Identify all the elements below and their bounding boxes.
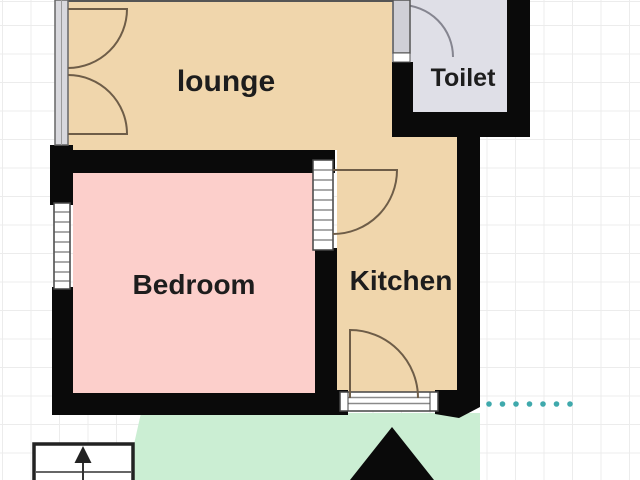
- toilet-door-leaf: [393, 0, 410, 53]
- toilet-label: Toilet: [431, 64, 496, 92]
- kitchen-entrance-threshold: [340, 392, 438, 411]
- bedroom-label: Bedroom: [133, 269, 256, 300]
- boundary-dotted-line: [486, 401, 573, 407]
- dot: [567, 401, 573, 407]
- wall-toilet-east: [507, 0, 530, 137]
- kitchen-doorway-jamb: [313, 160, 333, 250]
- lounge-label: lounge: [177, 65, 275, 98]
- wall-lounge-north-edge: [57, 0, 393, 2]
- dot: [554, 401, 560, 407]
- wall-bedroom-kitchen: [315, 248, 337, 415]
- garden-area: [126, 413, 480, 480]
- wall-bedroom-south: [52, 393, 338, 415]
- dot: [527, 401, 533, 407]
- wall-kitchen-east: [457, 130, 480, 392]
- bedroom-window: [54, 203, 70, 289]
- north-indicator-box: [34, 444, 133, 480]
- wall-lounge-bedroom-divider: [50, 150, 335, 173]
- kitchen-label: Kitchen: [350, 265, 453, 296]
- dot: [540, 401, 546, 407]
- dot: [500, 401, 506, 407]
- floor-plan-drawing: lounge Toilet Bedroom Kitchen: [0, 0, 640, 480]
- toilet-door-stop: [393, 53, 410, 62]
- dot: [513, 401, 519, 407]
- dot: [486, 401, 492, 407]
- floor-plan-canvas: lounge Toilet Bedroom Kitchen: [0, 0, 640, 480]
